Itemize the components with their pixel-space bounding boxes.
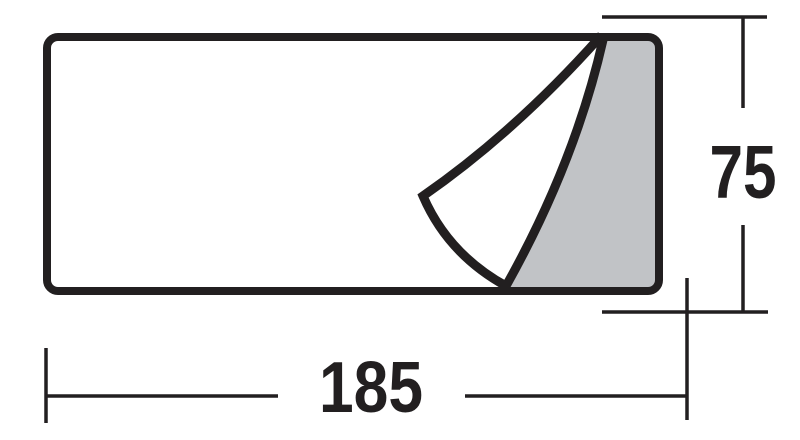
width-dimension-value: 185: [319, 348, 423, 428]
technical-drawing: 75 185: [0, 0, 800, 440]
height-dimension-value: 75: [710, 130, 777, 214]
diagram-canvas: 75 185: [0, 0, 800, 440]
